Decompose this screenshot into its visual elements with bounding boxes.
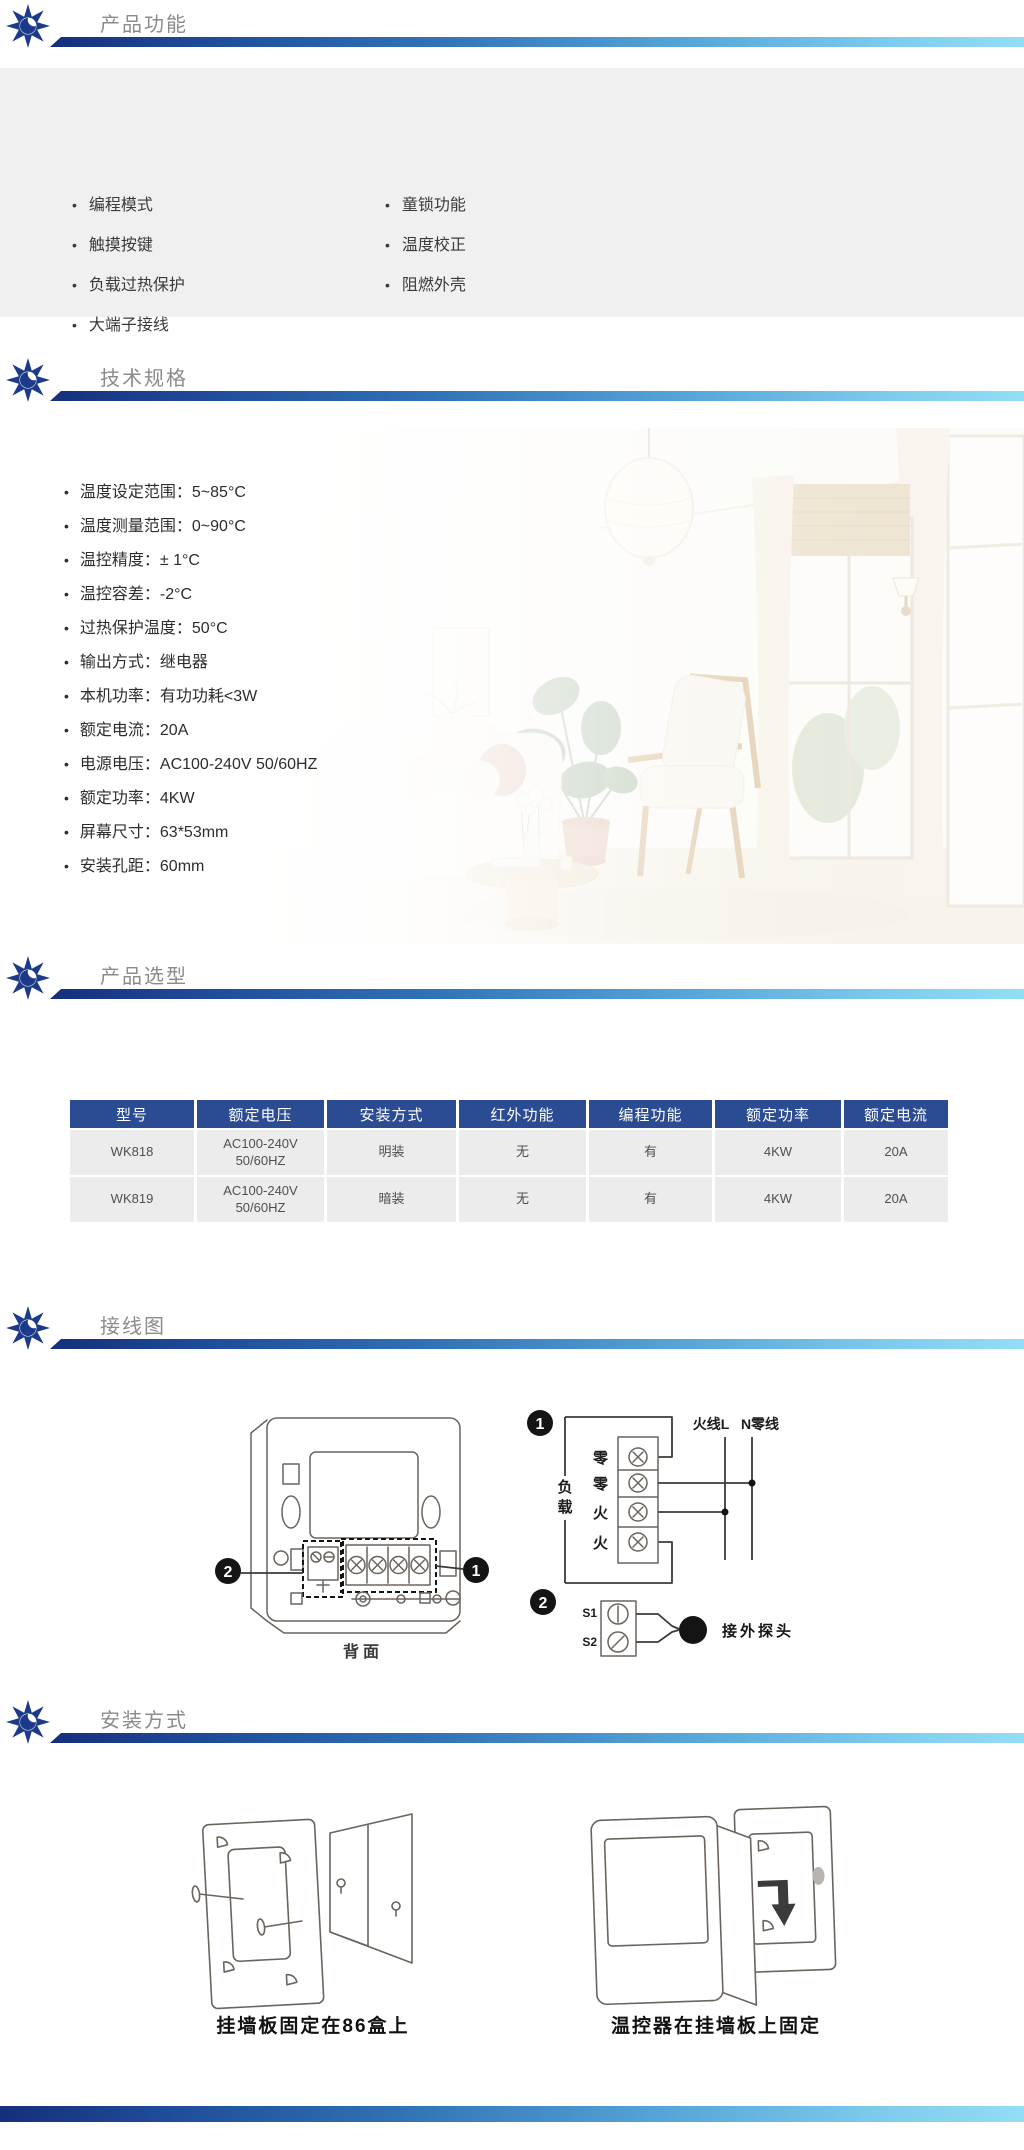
live-wire-label: 火线L <box>693 1416 730 1432</box>
terminal-strip <box>618 1437 658 1563</box>
spec-item: 过热保护温度：50°C <box>64 614 317 632</box>
feature-item: 童锁功能 <box>385 191 466 209</box>
spec-item: 温控容差：-2°C <box>64 580 317 598</box>
wiring-diagram: 背面 2 1 1 负 载 <box>0 1380 1024 1680</box>
probe-circle <box>679 1616 707 1644</box>
brand-gear-icon <box>5 1302 51 1354</box>
section-divider-bar <box>50 989 1024 999</box>
installation-diagrams: 挂墙板固定在86盒上 温控器在挂墙板上固定 <box>0 1780 1024 2060</box>
col-header-voltage: 额定电压 <box>197 1100 324 1128</box>
brand-gear-icon <box>5 354 51 406</box>
specs-list: 温度设定范围：5~85°C 温度测量范围：0~90°C 温控精度：± 1°C 温… <box>64 478 317 886</box>
load-label-char: 负 <box>557 1478 572 1496</box>
cell-model: WK819 <box>70 1177 194 1222</box>
section-title-selection: 产品选型 <box>100 960 188 989</box>
footer-divider-bar <box>0 2106 1024 2122</box>
feature-item: 编程模式 <box>72 191 185 209</box>
cell-current: 20A <box>844 1177 948 1222</box>
back-view-caption: 背面 <box>343 1642 383 1661</box>
spec-item: 温控精度：± 1°C <box>64 546 317 564</box>
section-divider-bar <box>50 37 1024 47</box>
product-selection-table: 型号 额定电压 安装方式 红外功能 编程功能 额定功率 额定电流 WK818 A… <box>70 1100 951 1222</box>
cell-infrared: 无 <box>459 1130 586 1175</box>
neutral-wire-label: N零线 <box>741 1416 779 1432</box>
cell-mount: 暗装 <box>327 1177 456 1222</box>
product-detail-page: 产品功能 编程模式 触摸按键 负载过热保护 大端子接线 童锁功能 温度校正 阻燃… <box>0 0 1024 2150</box>
spec-item: 屏幕尺寸：63*53mm <box>64 818 317 836</box>
features-column-1: 编程模式 触摸按键 负载过热保护 大端子接线 <box>72 191 185 351</box>
voltage-line1: AC100-240V <box>223 1183 297 1200</box>
table-row: WK818 AC100-240V 50/60HZ 明装 无 有 4KW 20A <box>70 1130 951 1175</box>
brand-gear-icon <box>5 952 51 1004</box>
cell-programming: 有 <box>589 1177 712 1222</box>
installation-caption-right: 温控器在挂墙板上固定 <box>611 2014 821 2037</box>
section-header-specs: 技术规格 <box>0 360 1024 410</box>
section-header-selection: 产品选型 <box>0 958 1024 1008</box>
section-header-installation: 安装方式 <box>0 1702 1024 1752</box>
spec-item: 安装孔距：60mm <box>64 852 317 870</box>
col-header-model: 型号 <box>70 1100 194 1128</box>
spec-item: 温度测量范围：0~90°C <box>64 512 317 530</box>
section-title-wiring: 接线图 <box>100 1310 166 1339</box>
spec-item: 额定功率：4KW <box>64 784 317 802</box>
svg-text:1: 1 <box>536 1416 545 1433</box>
col-header-mount: 安装方式 <box>327 1100 456 1128</box>
terminal-label: 火 <box>593 1505 609 1522</box>
feature-item: 温度校正 <box>385 231 466 249</box>
col-header-power: 额定功率 <box>715 1100 841 1128</box>
wiring-schematic: 1 负 载 零 零 火 火 <box>527 1410 779 1583</box>
sensor-terminal-label: S1 <box>582 1606 597 1620</box>
features-panel: 编程模式 触摸按键 负载过热保护 大端子接线 童锁功能 温度校正 阻燃外壳 <box>0 68 1024 317</box>
thermostat-mount-diagram: 温控器在挂墙板上固定 <box>591 1806 836 2037</box>
section-divider-bar <box>50 1339 1024 1349</box>
cell-voltage: AC100-240V 50/60HZ <box>197 1177 324 1222</box>
voltage-line2: 50/60HZ <box>236 1200 286 1217</box>
spec-item: 输出方式：继电器 <box>64 648 317 666</box>
load-label-char: 载 <box>557 1498 572 1516</box>
spec-item: 电源电压：AC100-240V 50/60HZ <box>64 750 317 768</box>
col-header-current: 额定电流 <box>844 1100 948 1128</box>
features-column-2: 童锁功能 温度校正 阻燃外壳 <box>385 191 466 311</box>
col-header-programming: 编程功能 <box>589 1100 712 1128</box>
cell-programming: 有 <box>589 1130 712 1175</box>
brand-gear-icon <box>5 0 51 52</box>
spec-item: 本机功率：有功功耗<3W <box>64 682 317 700</box>
section-divider-bar <box>50 1733 1024 1743</box>
section-header-features: 产品功能 <box>0 6 1024 56</box>
sensor-terminal-block <box>601 1601 636 1656</box>
voltage-line2: 50/60HZ <box>236 1153 286 1170</box>
svg-text:2: 2 <box>539 1595 548 1612</box>
installation-caption-left: 挂墙板固定在86盒上 <box>216 2014 409 2037</box>
svg-text:1: 1 <box>472 1563 481 1580</box>
junction-box-diagram <box>330 1814 412 1963</box>
cell-power: 4KW <box>715 1177 841 1222</box>
sensor-probe-diagram: 2 S1 S2 接外探头 <box>530 1589 794 1656</box>
cell-model: WK818 <box>70 1130 194 1175</box>
spec-item: 额定电流：20A <box>64 716 317 734</box>
cell-infrared: 无 <box>459 1177 586 1222</box>
col-header-infrared: 红外功能 <box>459 1100 586 1128</box>
cell-current: 20A <box>844 1130 948 1175</box>
terminal-label: 火 <box>593 1535 609 1552</box>
cell-mount: 明装 <box>327 1130 456 1175</box>
probe-label: 接外探头 <box>722 1622 794 1640</box>
sensor-terminal-label: S2 <box>582 1635 597 1649</box>
terminal-label: 零 <box>592 1450 609 1467</box>
section-header-wiring: 接线图 <box>0 1308 1024 1358</box>
cell-power: 4KW <box>715 1130 841 1175</box>
section-title-features: 产品功能 <box>100 8 188 37</box>
wall-plate-diagram: 挂墙板固定在86盒上 <box>191 1814 412 2037</box>
section-title-specs: 技术规格 <box>100 362 188 391</box>
thermostat-body <box>591 1815 757 2010</box>
feature-item: 触摸按键 <box>72 231 185 249</box>
cell-voltage: AC100-240V 50/60HZ <box>197 1130 324 1175</box>
feature-item: 阻燃外壳 <box>385 271 466 289</box>
brand-gear-icon <box>5 1696 51 1748</box>
table-header-row: 型号 额定电压 安装方式 红外功能 编程功能 额定功率 额定电流 <box>70 1100 951 1128</box>
spec-item: 温度设定范围：5~85°C <box>64 478 317 496</box>
feature-item: 大端子接线 <box>72 311 185 329</box>
thermostat-back-diagram: 背面 2 1 <box>215 1418 489 1661</box>
voltage-line1: AC100-240V <box>223 1136 297 1153</box>
section-divider-bar <box>50 391 1024 401</box>
svg-text:2: 2 <box>224 1564 233 1581</box>
section-title-installation: 安装方式 <box>100 1704 188 1733</box>
terminal-label: 零 <box>592 1476 609 1493</box>
feature-item: 负载过热保护 <box>72 271 185 289</box>
table-row: WK819 AC100-240V 50/60HZ 暗装 无 有 4KW 20A <box>70 1177 951 1222</box>
